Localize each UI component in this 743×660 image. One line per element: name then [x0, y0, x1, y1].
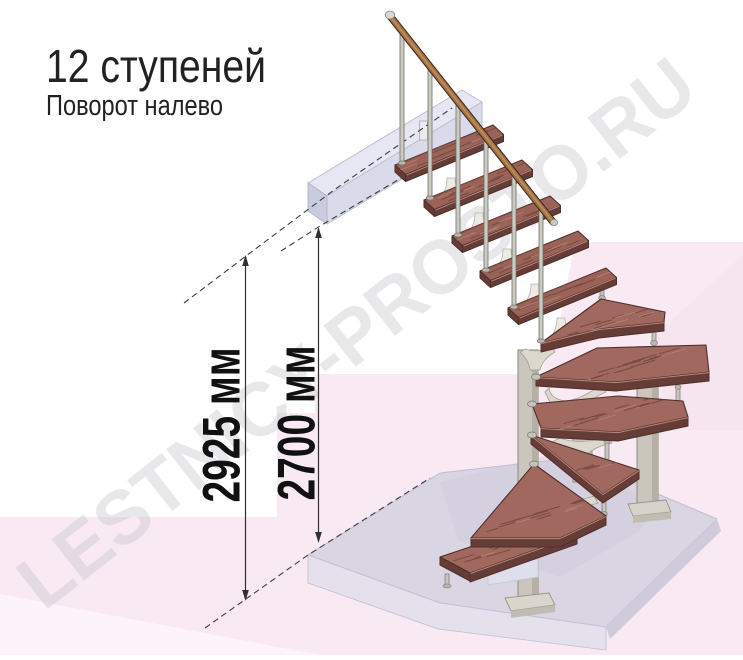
svg-text:2700 мм: 2700 мм: [268, 346, 327, 501]
svg-text:12 ступеней: 12 ступеней: [46, 40, 266, 92]
svg-text:2925 мм: 2925 мм: [193, 348, 252, 503]
svg-text:Поворот налево: Поворот налево: [46, 90, 223, 122]
